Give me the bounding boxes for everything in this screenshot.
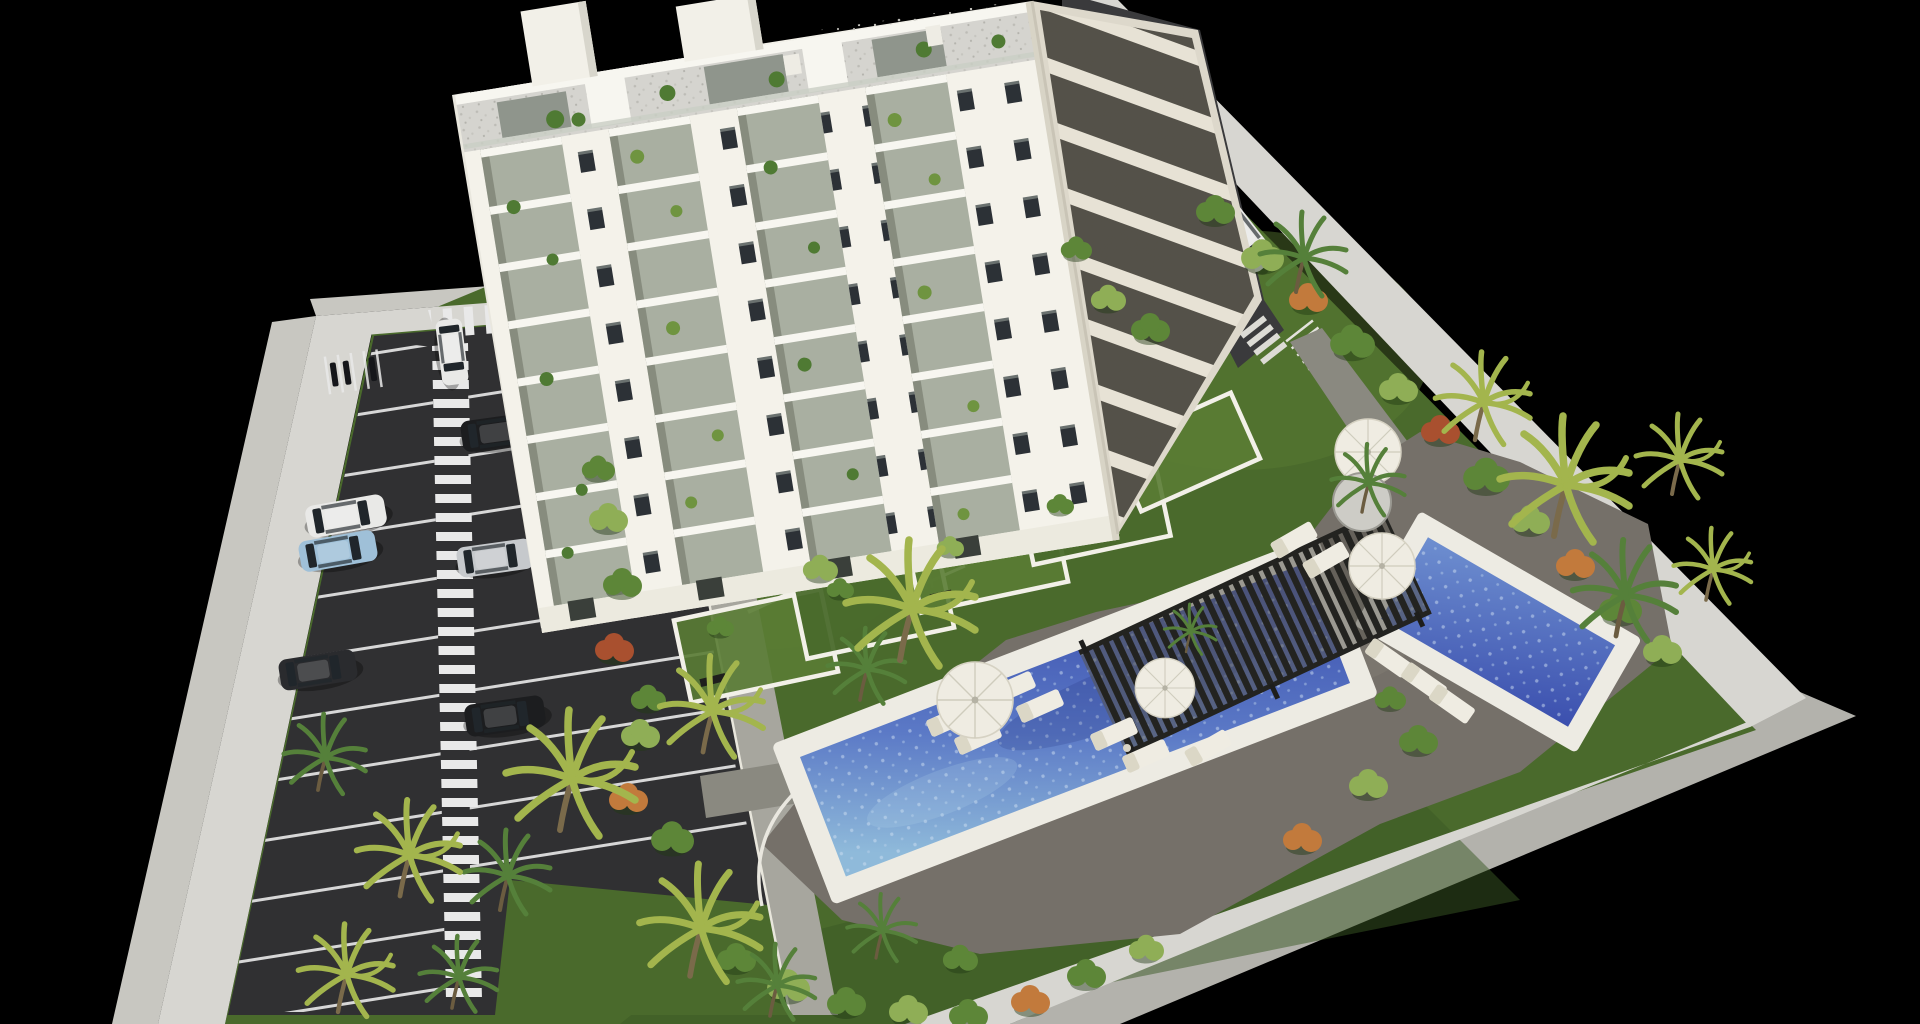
roof-chimney [783,54,802,76]
parasol [1349,533,1415,599]
parasol [1135,658,1194,717]
side-table [1123,744,1131,752]
building-front-face [443,0,1119,633]
render-canvas [0,0,1920,1024]
parasol [937,662,1013,738]
architectural-render [0,0,1920,1024]
roof-chimney [925,25,943,47]
